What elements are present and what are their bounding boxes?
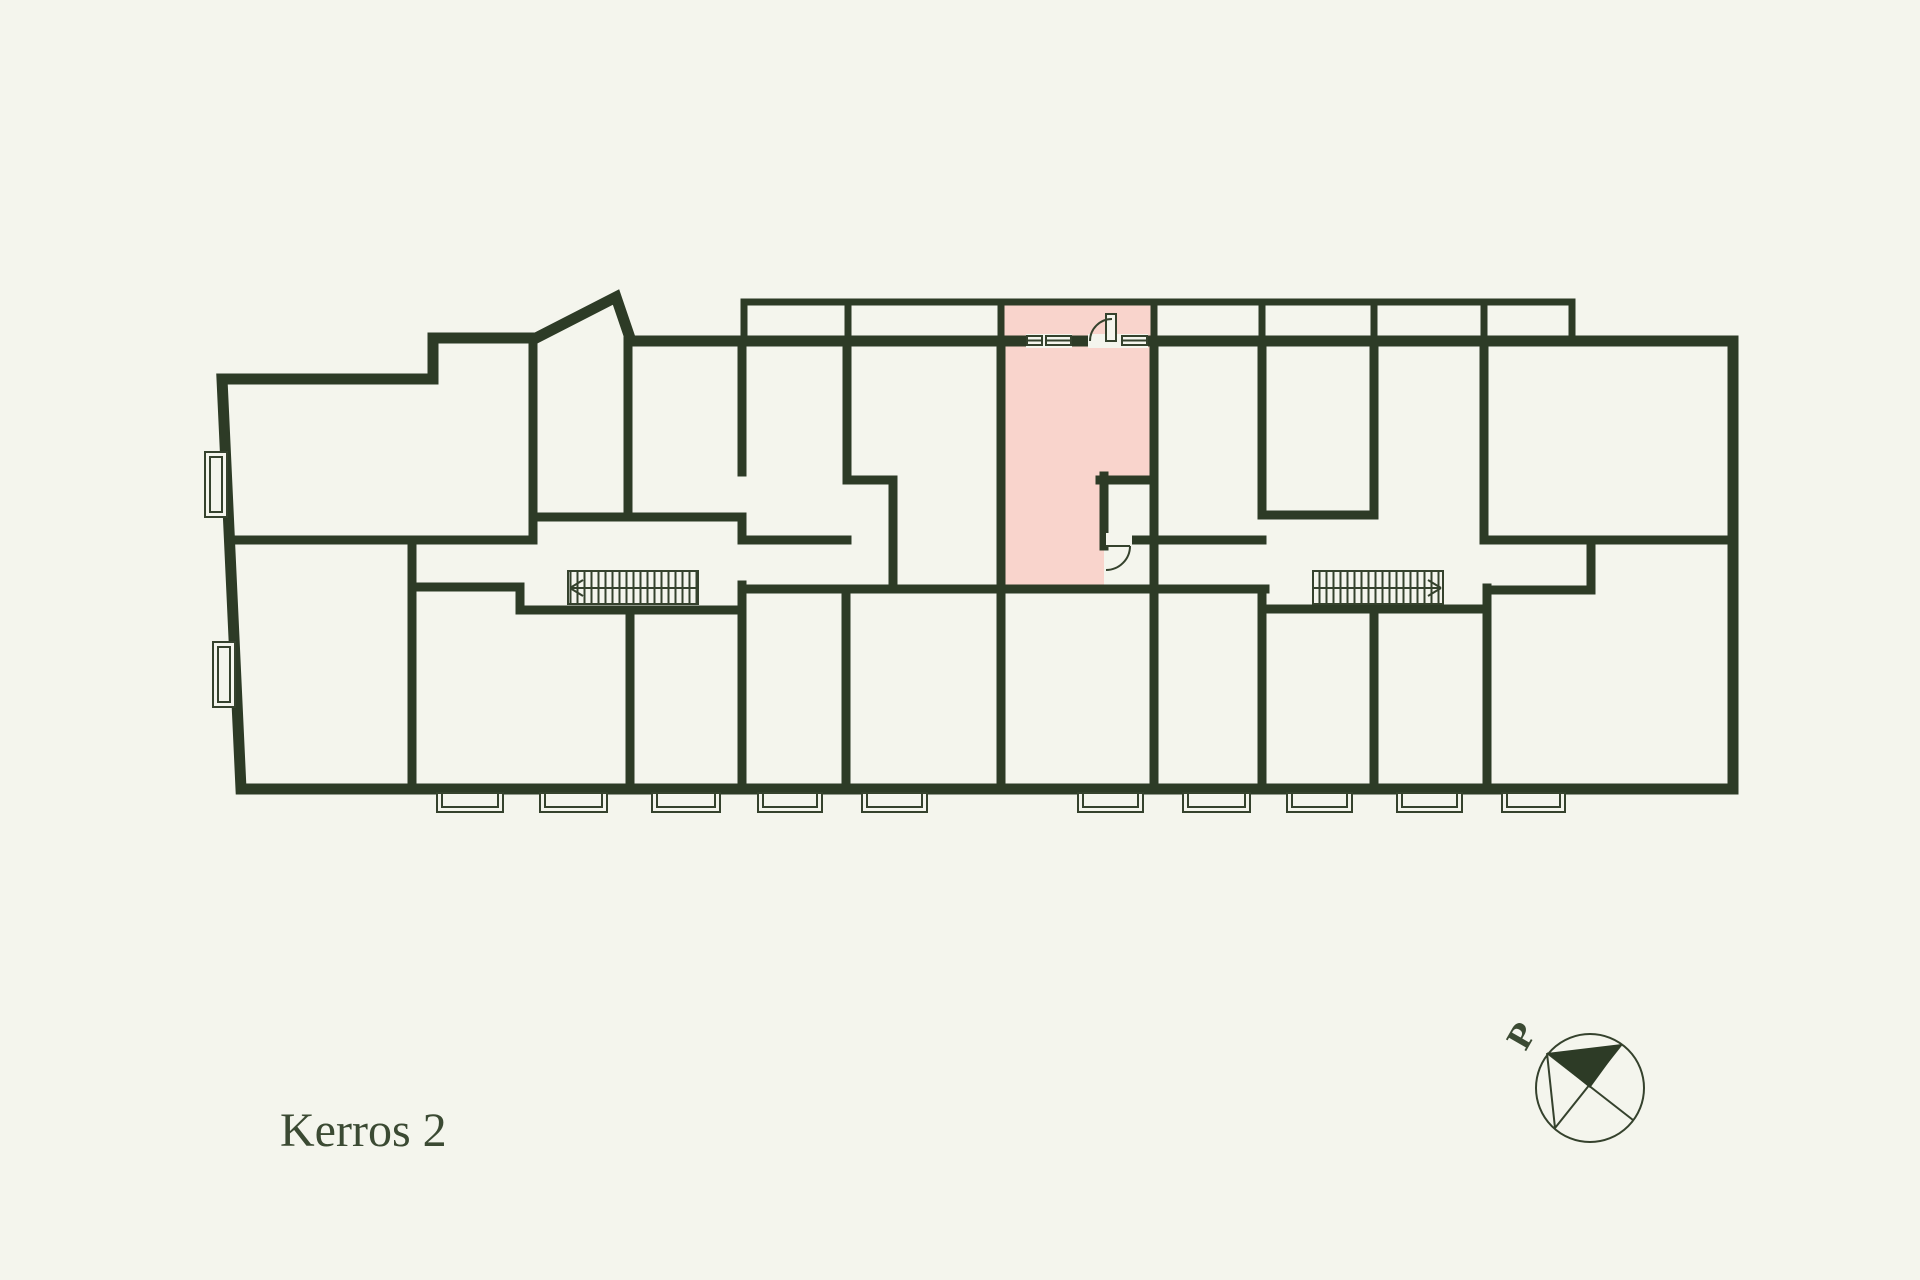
compass-icon: P bbox=[1499, 1017, 1644, 1142]
north-label: P bbox=[1499, 1017, 1544, 1057]
highlighted-unit-room bbox=[1001, 341, 1154, 589]
bottom-facade-windows bbox=[437, 793, 1565, 812]
stairs-right-icon bbox=[1313, 571, 1443, 604]
stairs-left-icon bbox=[568, 571, 698, 604]
entry-door-icon bbox=[1106, 546, 1130, 570]
interior-walls bbox=[229, 338, 1733, 789]
floor-title: Kerros 2 bbox=[280, 1104, 447, 1157]
floor-plan-canvas: P Kerros 2 bbox=[0, 0, 1920, 1280]
floor-plan-page: P Kerros 2 bbox=[0, 0, 1920, 1280]
balcony-strip bbox=[744, 302, 1572, 341]
